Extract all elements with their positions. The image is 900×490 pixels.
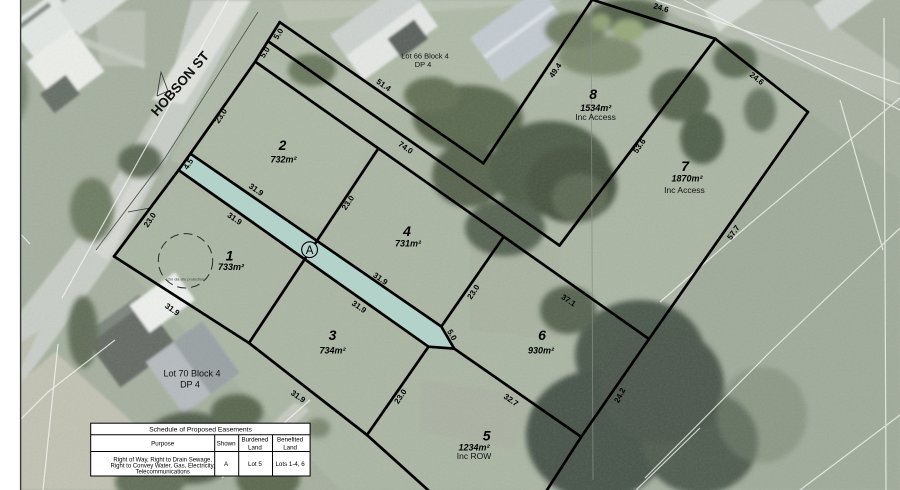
svg-text:Benefited: Benefited	[277, 437, 304, 444]
svg-text:1870m²: 1870m²	[671, 174, 703, 184]
svg-text:6: 6	[538, 327, 546, 343]
svg-text:5: 5	[483, 427, 491, 443]
svg-text:7: 7	[681, 158, 690, 174]
svg-text:Inc ROW: Inc ROW	[457, 451, 491, 461]
svg-text:8: 8	[589, 86, 597, 102]
svg-text:Telecommunications: Telecommunications	[136, 470, 190, 476]
svg-text:DP 4: DP 4	[415, 60, 432, 69]
svg-text:Lot 5: Lot 5	[248, 461, 262, 468]
svg-text:Purpose: Purpose	[151, 441, 175, 448]
svg-text:Lot 70 Block 4: Lot 70 Block 4	[163, 369, 220, 379]
svg-text:731m²: 731m²	[395, 238, 422, 248]
svg-text:733m²: 733m²	[218, 262, 245, 272]
svg-text:Land: Land	[248, 445, 262, 452]
svg-text:3: 3	[329, 327, 337, 343]
svg-text:Burdened: Burdened	[241, 437, 268, 444]
svg-text:Inc Access: Inc Access	[575, 112, 616, 122]
svg-text:A: A	[306, 245, 314, 257]
svg-text:12m dia site protection: 12m dia site protection	[166, 278, 204, 282]
svg-text:4: 4	[402, 223, 411, 239]
svg-text:Right of Way, Right to Drain S: Right of Way, Right to Drain Sewage,	[113, 457, 212, 463]
svg-text:Schedule of Proposed Easements: Schedule of Proposed Easements	[149, 427, 252, 434]
svg-text:Land: Land	[283, 445, 297, 452]
svg-text:732m²: 732m²	[270, 155, 297, 165]
svg-text:Shown: Shown	[217, 441, 236, 448]
svg-text:Lots 1-4, 6: Lots 1-4, 6	[275, 461, 305, 468]
svg-text:DP 4: DP 4	[180, 380, 200, 390]
svg-text:Inc Access: Inc Access	[664, 185, 705, 195]
svg-text:Right to Convey Water, Gas, El: Right to Convey Water, Gas, Electricity,	[111, 464, 216, 470]
svg-text:930m²: 930m²	[528, 346, 555, 356]
svg-text:2: 2	[278, 137, 287, 153]
svg-text:734m²: 734m²	[319, 346, 346, 356]
